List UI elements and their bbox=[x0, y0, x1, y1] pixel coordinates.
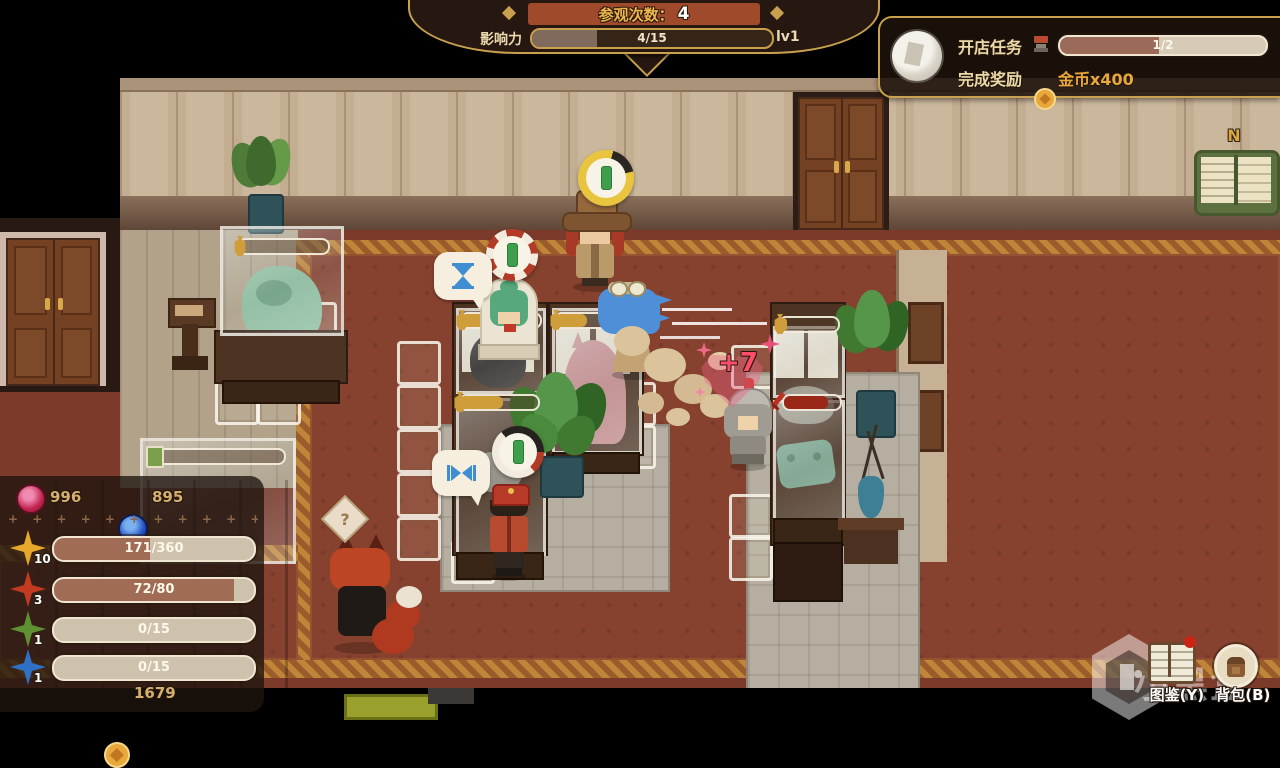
map-book-icon[interactable] bbox=[1194, 150, 1280, 216]
visits-value: 4 bbox=[678, 4, 690, 24]
stat-row-gold: 10 171/360 bbox=[0, 532, 264, 566]
catalog-book-icon[interactable] bbox=[1148, 642, 1196, 684]
stats-panel: 996 895 + + + + + + + + + + + + + + 10 1… bbox=[0, 476, 264, 712]
minimap[interactable]: N bbox=[1190, 126, 1280, 218]
left-door[interactable] bbox=[6, 238, 100, 386]
quest-progress-text: 1/2 bbox=[1060, 37, 1266, 54]
green-book-icon bbox=[146, 446, 164, 468]
stat-bar: 171/360 bbox=[52, 536, 256, 562]
reward-text: 金币x400 bbox=[1058, 66, 1134, 90]
backpack-label[interactable]: 背包(B) bbox=[1215, 686, 1270, 704]
stat-row-green: 1 0/15 bbox=[0, 613, 264, 647]
hourglass-icon bbox=[452, 263, 474, 289]
compass-north: N bbox=[1224, 126, 1244, 145]
timer-progress bbox=[513, 440, 524, 464]
placement-tile[interactable] bbox=[397, 341, 441, 385]
npc-pirate[interactable] bbox=[562, 190, 628, 292]
case-bar-rock bbox=[458, 394, 540, 411]
quest-title: 开店任务 bbox=[958, 34, 1022, 58]
placement-tile[interactable] bbox=[397, 385, 441, 429]
display-stand-icon bbox=[1032, 35, 1050, 53]
npc-fox[interactable] bbox=[324, 534, 420, 658]
skip-icon bbox=[447, 465, 476, 481]
top-door[interactable] bbox=[798, 97, 884, 230]
red-gem-value: 996 bbox=[50, 488, 81, 506]
coin-icon bbox=[104, 742, 130, 768]
bubble-hourglass bbox=[434, 252, 492, 300]
shortcut-labels: 图鉴(Y) 背包(B) bbox=[1140, 684, 1280, 705]
red-gem-icon bbox=[16, 484, 46, 514]
stat-bar: 0/15 bbox=[52, 655, 256, 681]
vase-table bbox=[838, 424, 904, 564]
influence-text: 4/15 bbox=[532, 30, 772, 47]
stat-bar: 0/15 bbox=[52, 617, 256, 643]
shortcut-icons: 图鉴(Y) 背包(B) bbox=[1140, 630, 1280, 720]
case-bar-right bbox=[778, 316, 840, 333]
sparkle-icon bbox=[694, 386, 706, 398]
top-banner: 参观次数： 4 影响力 4/15 lv1 bbox=[408, 0, 880, 76]
question-mark: ? bbox=[330, 504, 360, 534]
heal-effect: +7 bbox=[696, 342, 786, 412]
coins-value: 1679 bbox=[134, 684, 176, 702]
blue-gem-value: 895 bbox=[152, 488, 183, 506]
timer-progress bbox=[601, 166, 612, 190]
sign-podium[interactable] bbox=[168, 298, 212, 372]
reward-label: 完成奖励 bbox=[958, 66, 1022, 90]
timer-yellow bbox=[578, 150, 634, 206]
timer-progress bbox=[507, 243, 518, 267]
influence-label: 影响力 bbox=[452, 29, 522, 49]
heal-popup: +7 bbox=[718, 348, 758, 378]
case-bar-sword bbox=[782, 394, 842, 411]
npc-bellhop[interactable] bbox=[484, 484, 534, 580]
placement-tile[interactable] bbox=[729, 494, 773, 538]
quest-stone-icon bbox=[892, 31, 942, 81]
stat-row-red: 3 72/80 bbox=[0, 573, 264, 607]
backpack-icon[interactable] bbox=[1214, 644, 1258, 688]
potted-plant bbox=[230, 136, 298, 234]
step-edge bbox=[428, 688, 474, 704]
visits-label: 参观次数： bbox=[599, 4, 674, 25]
level-label: lv1 bbox=[776, 29, 800, 45]
plus-divider: + + + + + + + + + + + + + + bbox=[8, 512, 258, 526]
right-plant bbox=[836, 290, 910, 440]
stat-bar: 72/80 bbox=[52, 577, 256, 603]
catalog-label[interactable]: 图鉴(Y) bbox=[1150, 686, 1205, 704]
visits-strip: 参观次数： 4 bbox=[528, 3, 760, 25]
door-mat bbox=[344, 694, 438, 720]
left-door-frame bbox=[0, 232, 106, 386]
case-bar-dragon bbox=[238, 238, 330, 255]
notification-dot bbox=[1184, 636, 1196, 648]
timer-striped bbox=[486, 229, 538, 281]
quest-progress-bar: 1/2 bbox=[1058, 35, 1268, 56]
goggles-icon bbox=[608, 282, 646, 294]
case-bar-bookcase bbox=[150, 448, 286, 465]
top-door-frame bbox=[793, 92, 889, 230]
bubble-skip bbox=[432, 450, 490, 496]
sparkle-icon bbox=[696, 342, 712, 358]
stat-row-blue: 1 0/15 bbox=[0, 651, 264, 685]
placement-tile[interactable] bbox=[729, 537, 773, 581]
influence-bar: 4/15 bbox=[530, 28, 774, 49]
quest-panel[interactable]: 开店任务 1/2 完成奖励 金币x400 bbox=[878, 16, 1280, 98]
timer-dark bbox=[492, 426, 544, 478]
coin-icon bbox=[1034, 88, 1056, 110]
